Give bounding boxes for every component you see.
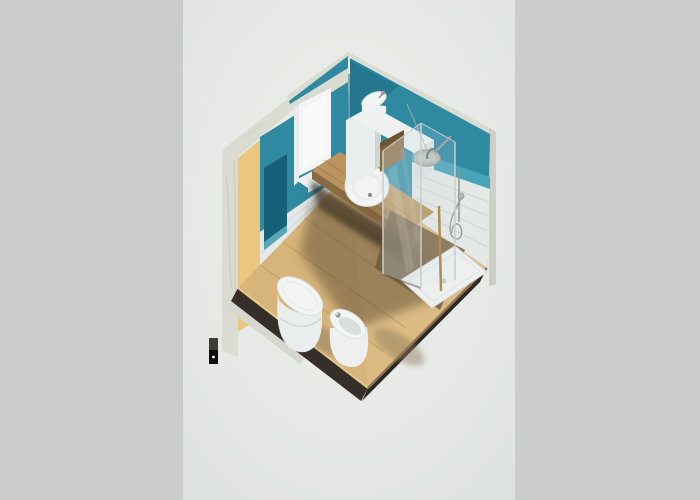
section-marker xyxy=(209,338,218,350)
backdrop-left-strip xyxy=(0,0,183,500)
glass-panel-side xyxy=(421,123,455,288)
hand-shower-head xyxy=(458,193,464,199)
washbasin-drain xyxy=(368,193,372,197)
screenshot-canvas xyxy=(0,0,700,500)
bidet-tap xyxy=(335,312,340,317)
exterior-marble-face xyxy=(222,143,238,357)
bathroom-axonometric-render xyxy=(0,0,700,500)
glass-shower-enclosure xyxy=(383,123,455,291)
window-jamb xyxy=(294,104,299,186)
bidet-tap-glint xyxy=(336,313,338,315)
right-wall-outer-edge xyxy=(490,128,496,286)
backdrop-right-strip xyxy=(515,0,700,500)
section-marker-dot xyxy=(212,356,215,359)
